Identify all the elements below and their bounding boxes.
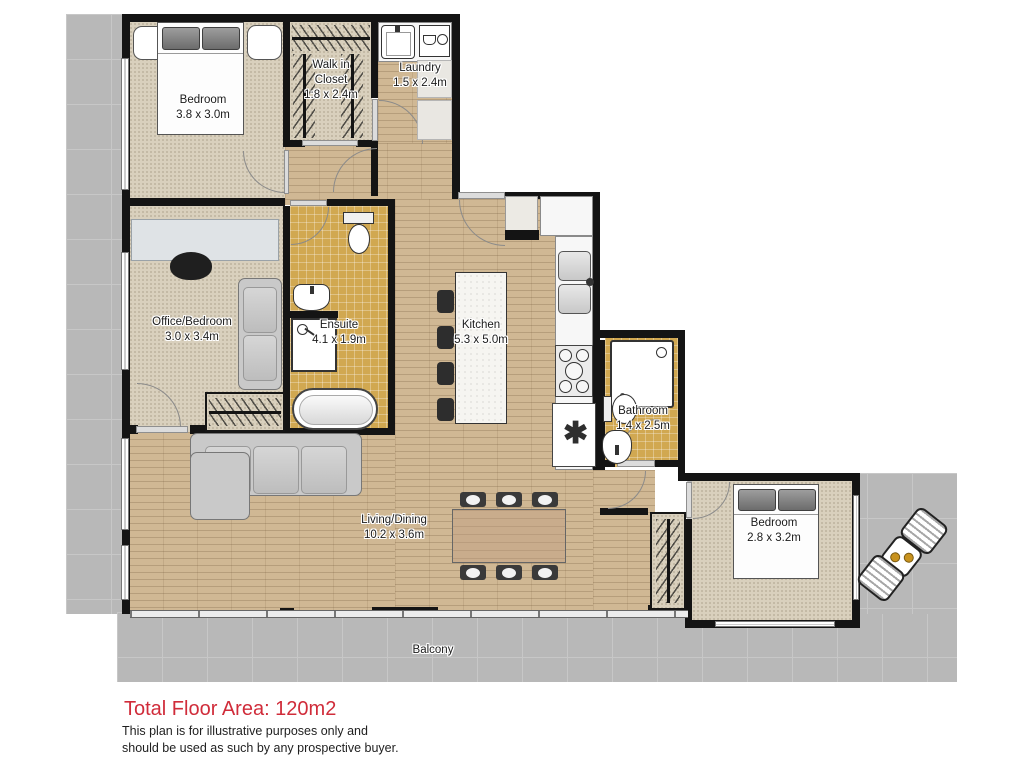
- kitchen-cabinet: [505, 196, 538, 232]
- wall: [356, 140, 378, 147]
- wall: [283, 14, 290, 145]
- kitchen-counter-top: [540, 196, 593, 236]
- bar-stool: [437, 398, 454, 421]
- room-label-laundry: Laundry 1.5 x 2.4m: [393, 61, 447, 91]
- wall: [678, 330, 685, 481]
- room-name: Bedroom: [176, 93, 230, 108]
- toilet-icon: [343, 212, 374, 224]
- pillow: [778, 489, 816, 511]
- balcony-label: Balcony: [413, 643, 454, 658]
- room-label-kitchen: Kitchen 5.3 x 5.0m: [454, 318, 508, 348]
- outdoor-name: Balcony: [413, 643, 454, 658]
- bar-stool: [437, 362, 454, 385]
- room-name: Bathroom: [616, 404, 670, 419]
- total-floor-area: Total Floor Area: 120m2: [124, 698, 336, 721]
- sink-bowl: [558, 284, 591, 314]
- basket-icon: [423, 35, 436, 45]
- kitchen-sink-icon: [558, 251, 591, 315]
- office-chair: [170, 252, 212, 280]
- sink-basin: [386, 32, 411, 56]
- pillow: [162, 27, 200, 50]
- faucet-icon: [586, 278, 594, 286]
- sofa-cushion: [243, 335, 277, 381]
- room-name: Bedroom: [747, 516, 801, 531]
- dining-chair: [532, 492, 558, 507]
- door-threshold: [686, 482, 692, 518]
- laundry-cabinet: [417, 100, 452, 140]
- room-label-office: Office/Bedroom 3.0 x 3.4m: [152, 315, 232, 345]
- refrigerator-icon: ✱: [552, 403, 596, 467]
- toilet-bowl-icon: [348, 224, 370, 254]
- sofa-cushion: [253, 446, 299, 494]
- sofa-chaise: [190, 452, 250, 520]
- door-threshold: [302, 140, 358, 146]
- door-threshold: [136, 426, 188, 433]
- room-dims: 5.3 x 5.0m: [454, 333, 508, 348]
- sink-bowl: [558, 251, 591, 281]
- dining-chair: [460, 565, 486, 580]
- door-threshold: [290, 200, 327, 206]
- wall: [452, 14, 460, 199]
- hall-closet: [650, 512, 686, 610]
- room-dims: 1:8 x 2.4m: [302, 88, 360, 103]
- dining-chair: [496, 492, 522, 507]
- room-label-bedroom-1: Bedroom 3.8 x 3.0m: [176, 93, 230, 123]
- window: [121, 545, 129, 600]
- wall: [655, 460, 685, 467]
- bathroom-sink-icon: [293, 284, 330, 311]
- wall: [371, 14, 378, 98]
- washing-machine-icon: [419, 25, 450, 57]
- asterisk-icon: ✱: [563, 416, 588, 451]
- wall: [327, 199, 395, 206]
- room-dims: 10.2 x 3.6m: [361, 528, 427, 543]
- burner: [559, 349, 572, 362]
- room-name: Living/Dining: [361, 513, 427, 528]
- pillow: [738, 489, 776, 511]
- sofa-cushion: [243, 287, 277, 333]
- wardrobe: [205, 392, 285, 432]
- outdoor-paving-left: [66, 14, 122, 614]
- cup-icon: [902, 551, 916, 565]
- room-name: Ensuite: [312, 318, 366, 333]
- pillow: [202, 27, 240, 50]
- wall: [593, 192, 600, 345]
- wall: [288, 311, 338, 318]
- door-threshold: [458, 192, 505, 199]
- closet-rail: [292, 37, 370, 40]
- wall: [600, 330, 685, 338]
- room-label-bathroom: Bathroom 1.4 x 2.5m: [616, 404, 670, 434]
- burner: [565, 362, 583, 380]
- wall: [129, 198, 285, 206]
- window: [715, 621, 835, 627]
- room-label-bedroom-2: Bedroom 2.8 x 3.2m: [747, 516, 801, 546]
- room-dims: 3.0 x 3.4m: [152, 330, 232, 345]
- burner: [576, 349, 589, 362]
- room-name: Laundry: [393, 61, 447, 76]
- room-label-walk-in-closet: Walk in Closet 1:8 x 2.4m: [302, 58, 360, 104]
- faucet-icon: [395, 26, 400, 32]
- window: [121, 58, 129, 190]
- bar-stool: [437, 290, 454, 313]
- room-dims: 1.4 x 2.5m: [616, 419, 670, 434]
- stove-icon: [555, 345, 593, 397]
- burner: [576, 380, 589, 393]
- wall: [505, 230, 539, 240]
- bathtub-icon: [292, 388, 378, 430]
- window: [121, 438, 129, 530]
- duvet-fold: [158, 53, 243, 54]
- faucet-icon: [615, 445, 619, 455]
- window: [121, 252, 129, 370]
- faucet-icon: [310, 286, 314, 294]
- window: [853, 495, 859, 600]
- room-name: Office/Bedroom: [152, 315, 232, 330]
- laundry-sink-icon: [381, 25, 415, 59]
- bathtub-basin: [299, 395, 373, 425]
- bar-stool: [437, 326, 454, 349]
- shower-head-icon: [656, 347, 667, 358]
- dining-chair: [460, 492, 486, 507]
- duvet-fold: [734, 514, 818, 515]
- room-label-ensuite: Ensuite 4.1 x 1.9m: [312, 318, 366, 348]
- dining-table: [452, 509, 566, 563]
- toilet-icon: [603, 396, 612, 422]
- wall: [125, 14, 460, 22]
- dining-chair: [496, 565, 522, 580]
- wall: [388, 199, 395, 435]
- floor-plan-canvas: ✱ Bedroom: [0, 0, 1024, 768]
- room-dims: 1.5 x 2.4m: [393, 76, 447, 91]
- nightstand: [247, 25, 282, 60]
- disclaimer-line-1: This plan is for illustrative purposes o…: [122, 724, 368, 738]
- sofa-cushion: [301, 446, 347, 494]
- balcony-glass-doors: [130, 610, 688, 618]
- closet-rail: [209, 411, 281, 414]
- door-threshold: [372, 99, 378, 141]
- wall: [600, 508, 648, 515]
- washer-door-icon: [437, 34, 448, 45]
- room-dims: 2.8 x 3.2m: [747, 531, 801, 546]
- office-sofa: [238, 278, 282, 390]
- room-name: Kitchen: [454, 318, 508, 333]
- burner: [559, 380, 572, 393]
- room-dims: 4.1 x 1.9m: [312, 333, 366, 348]
- room-dims: 3.8 x 3.0m: [176, 108, 230, 123]
- closet-rail: [667, 519, 670, 603]
- room-label-living-dining: Living/Dining 10.2 x 3.6m: [361, 513, 427, 543]
- bathroom-sink-icon: [602, 430, 632, 464]
- room-name: Walk in Closet: [302, 58, 360, 88]
- dining-chair: [532, 565, 558, 580]
- wall: [678, 473, 860, 481]
- disclaimer-line-2: should be used as such by any prospectiv…: [122, 741, 399, 755]
